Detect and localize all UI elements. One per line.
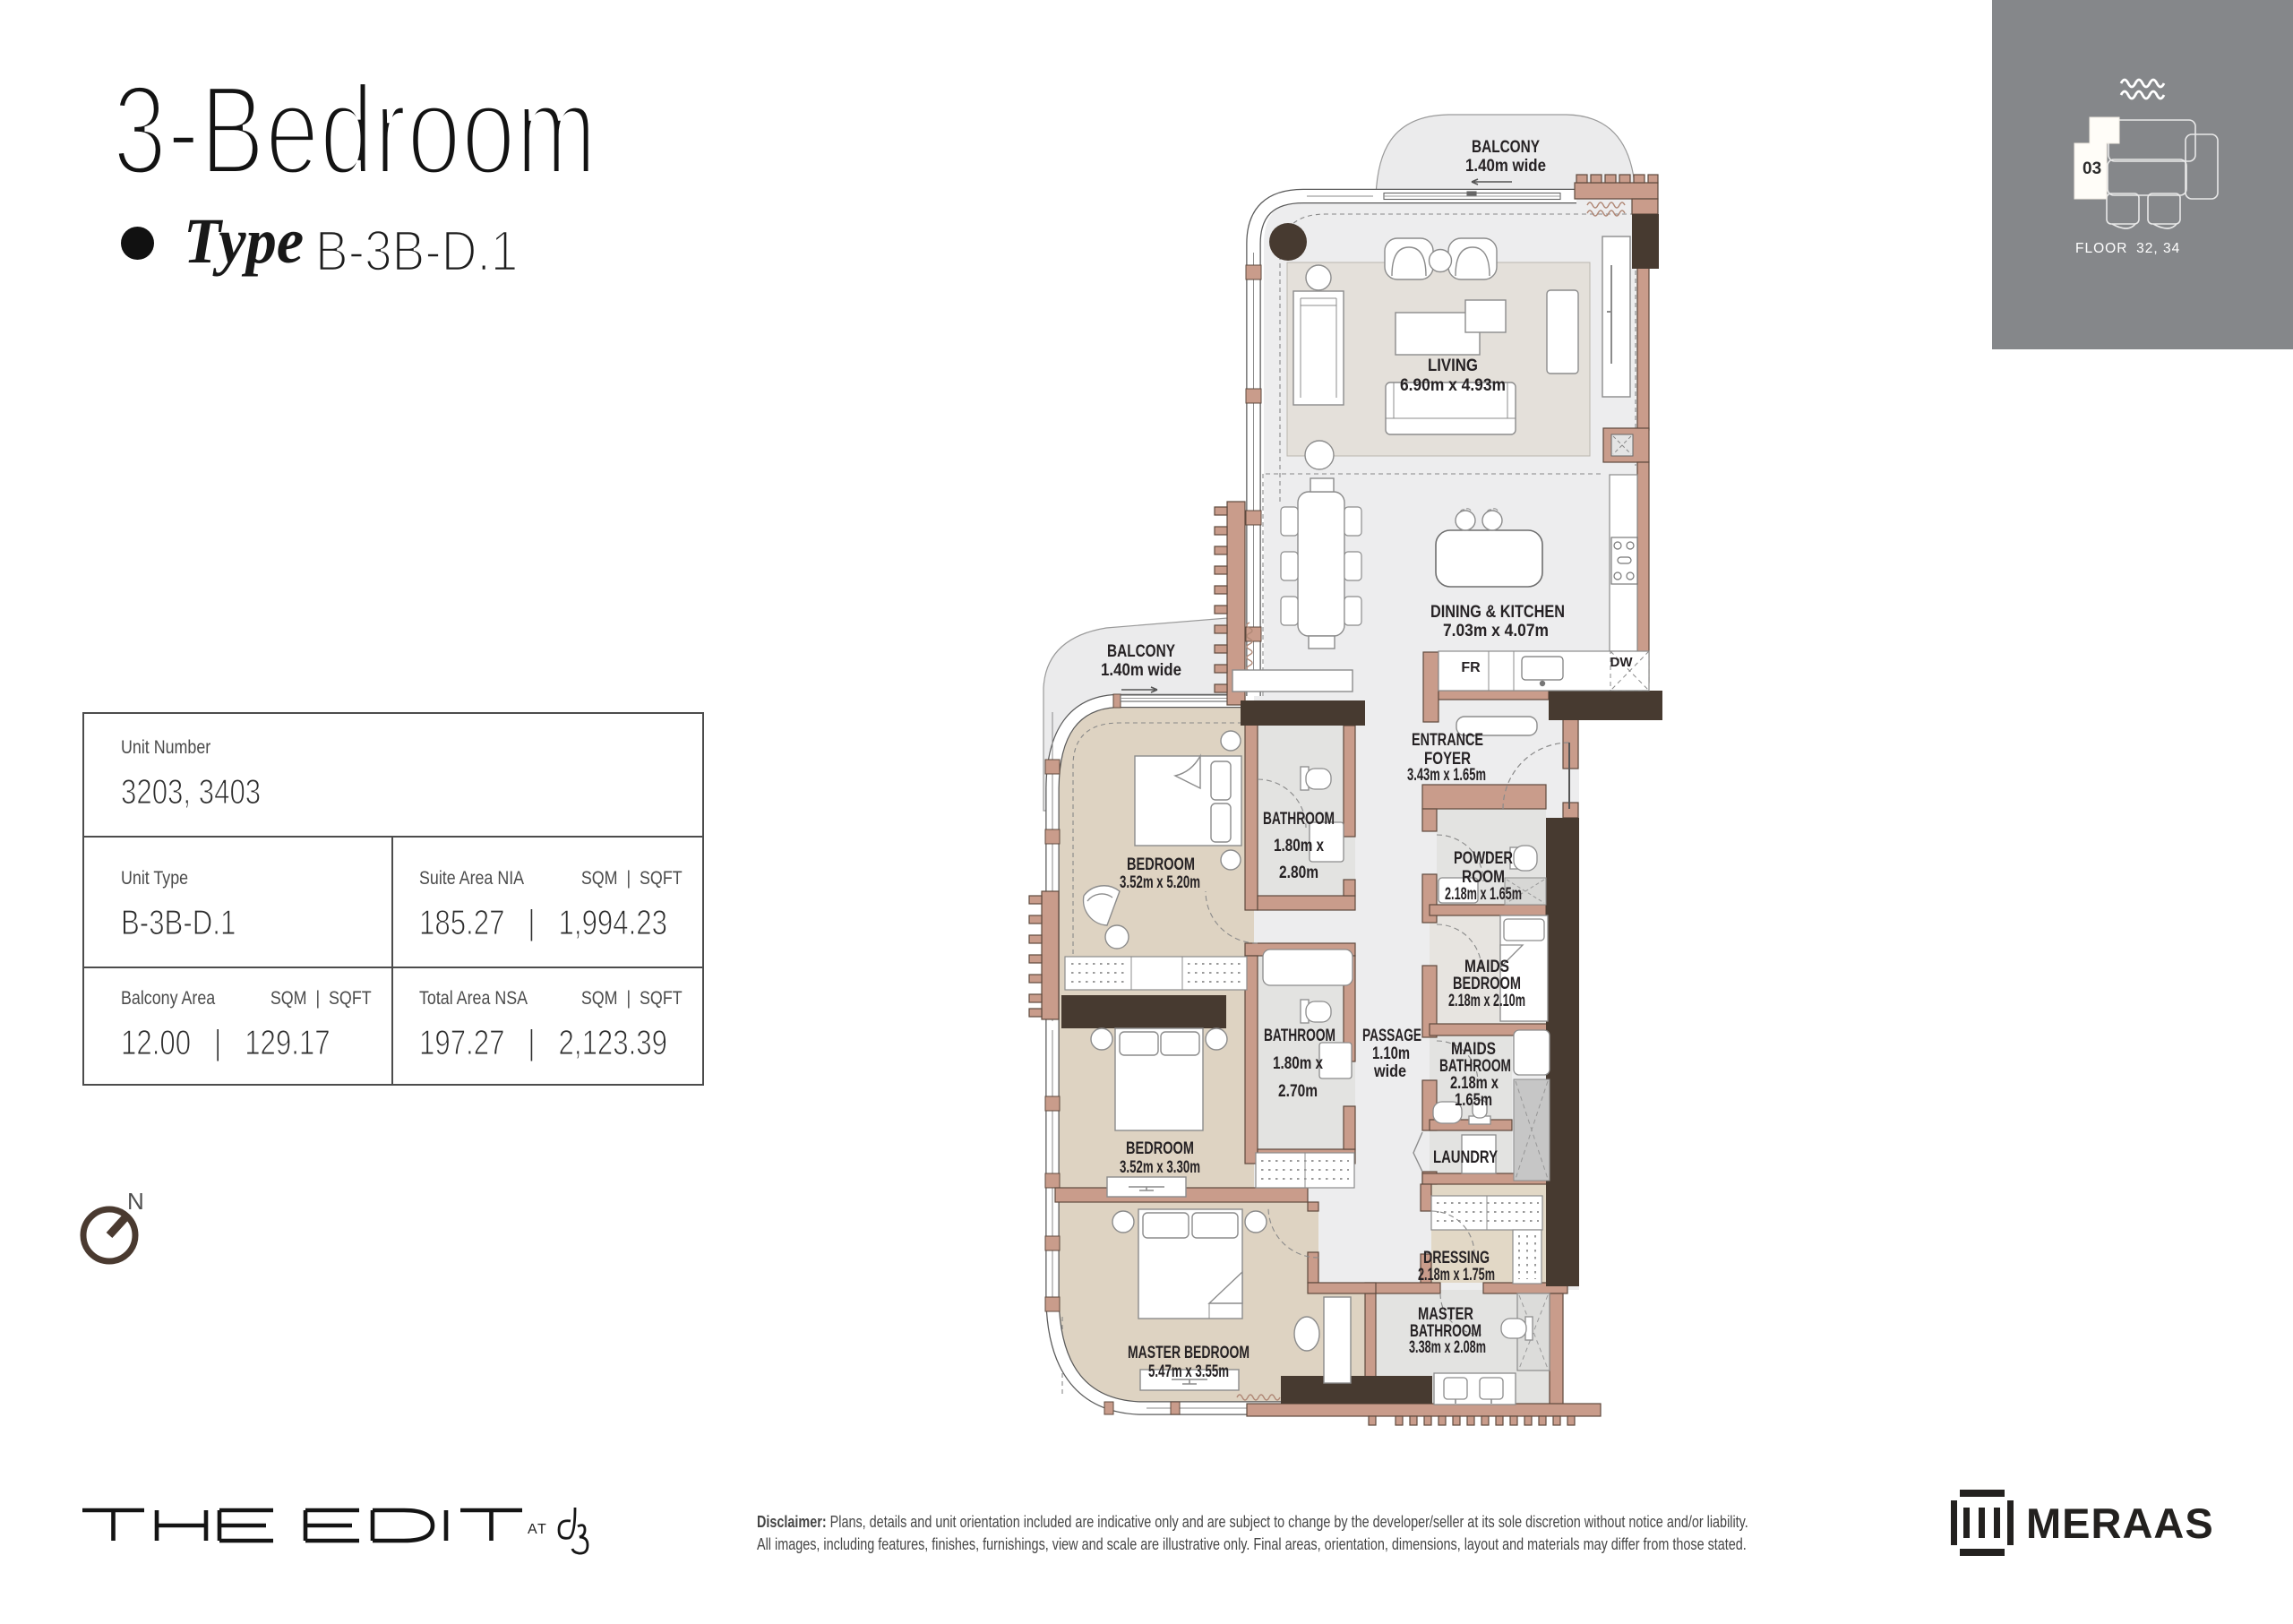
svg-text:2.80m: 2.80m [1279, 864, 1318, 882]
svg-text:3.43m x 1.65m: 3.43m x 1.65m [1407, 766, 1486, 785]
svg-text:5.47m x 3.55m: 5.47m x 3.55m [1148, 1362, 1229, 1381]
svg-text:1.40m wide: 1.40m wide [1465, 157, 1546, 176]
svg-text:BATHROOM: BATHROOM [1439, 1057, 1511, 1076]
svg-text:LIVING: LIVING [1428, 357, 1478, 375]
svg-text:MAIDS: MAIDS [1451, 1040, 1496, 1059]
svg-text:1.40m wide: 1.40m wide [1101, 661, 1181, 680]
svg-text:wide: wide [1373, 1062, 1406, 1081]
svg-text:FR: FR [1461, 660, 1481, 675]
svg-text:1.65m: 1.65m [1455, 1091, 1492, 1110]
svg-text:BEDROOM: BEDROOM [1453, 975, 1521, 993]
svg-text:1.80m x: 1.80m x [1273, 1054, 1323, 1073]
svg-text:2.18m x: 2.18m x [1450, 1074, 1499, 1093]
svg-text:MASTER: MASTER [1418, 1305, 1473, 1324]
svg-text:MASTER BEDROOM: MASTER BEDROOM [1128, 1344, 1250, 1362]
svg-text:3.52m x 3.30m: 3.52m x 3.30m [1120, 1158, 1200, 1177]
svg-text:BALCONY: BALCONY [1107, 642, 1175, 661]
svg-text:3.52m x 5.20m: 3.52m x 5.20m [1120, 873, 1200, 892]
svg-text:2.18m x 1.65m: 2.18m x 1.65m [1445, 885, 1522, 904]
svg-text:2.70m: 2.70m [1278, 1082, 1318, 1101]
svg-text:ENTRANCE: ENTRANCE [1412, 731, 1483, 750]
svg-text:6.90m x 4.93m: 6.90m x 4.93m [1400, 376, 1506, 395]
svg-text:3.38m x 2.08m: 3.38m x 2.08m [1409, 1338, 1486, 1357]
svg-text:BALCONY: BALCONY [1472, 138, 1540, 157]
svg-text:ROOM: ROOM [1462, 868, 1505, 887]
svg-text:2.18m x 1.75m: 2.18m x 1.75m [1418, 1266, 1495, 1285]
svg-text:DINING & KITCHEN: DINING & KITCHEN [1430, 603, 1565, 622]
svg-text:AT: AT [528, 1522, 547, 1537]
svg-text:BATHROOM: BATHROOM [1264, 1027, 1335, 1045]
svg-text:MERAAS: MERAAS [2026, 1499, 2214, 1547]
svg-text:7.03m x 4.07m: 7.03m x 4.07m [1443, 622, 1549, 640]
svg-text:PASSAGE: PASSAGE [1362, 1027, 1421, 1045]
svg-text:2.18m x 2.10m: 2.18m x 2.10m [1448, 992, 1525, 1010]
svg-text:BATHROOM: BATHROOM [1263, 810, 1335, 829]
svg-text:1.10m: 1.10m [1372, 1044, 1410, 1063]
svg-text:1.80m x: 1.80m x [1274, 837, 1324, 855]
svg-text:DRESSING: DRESSING [1423, 1249, 1490, 1267]
svg-text:MAIDS: MAIDS [1464, 958, 1509, 976]
svg-text:BEDROOM: BEDROOM [1126, 1139, 1194, 1158]
svg-text:LAUNDRY: LAUNDRY [1433, 1148, 1498, 1167]
svg-text:POWDER: POWDER [1454, 849, 1513, 868]
svg-text:BEDROOM: BEDROOM [1127, 855, 1195, 874]
svg-text:DW: DW [1610, 655, 1634, 670]
